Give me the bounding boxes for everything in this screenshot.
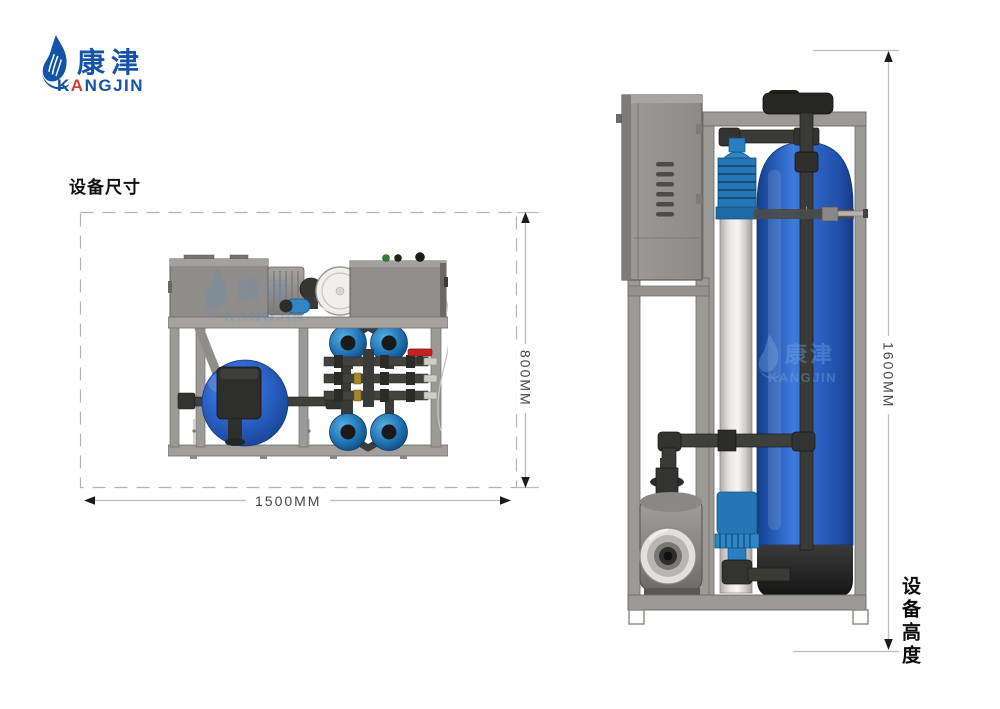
tank-control-valve <box>763 90 833 114</box>
red-valve-handle <box>408 349 432 356</box>
brand-en-accent: A <box>71 76 85 95</box>
base-frame <box>628 595 868 624</box>
equipment-side-view: 康津 KANGJIN <box>608 90 878 660</box>
manifold-ports <box>424 358 437 399</box>
filter-manifold <box>324 325 437 451</box>
page-canvas: 康津 KANGJIN 设备尺寸 <box>0 0 1000 709</box>
foot <box>629 610 644 624</box>
svg-text:康津: 康津 <box>785 342 835 367</box>
brass-fitting <box>354 373 361 384</box>
svg-text:KANGJIN: KANGJIN <box>224 308 306 325</box>
svg-text:康津: 康津 <box>236 276 294 305</box>
height-caption: 设备高度 <box>896 576 923 668</box>
right-electrical-box <box>350 261 446 319</box>
brand-en-rest: NGJIN <box>85 76 144 95</box>
brand-name-chinese: 康津 <box>77 49 145 77</box>
tank-strap <box>754 207 868 221</box>
dimension-width-label: 1500MM <box>246 493 330 510</box>
brand-name-english: KANGJIN <box>57 77 144 94</box>
watermark-side-view: 康津 KANGJIN <box>758 334 837 385</box>
svg-text:KANGJIN: KANGJIN <box>768 370 837 385</box>
membrane-top-fitting <box>716 138 758 219</box>
section-title: 设备尺寸 <box>69 173 141 198</box>
brand-logo: 康津 KANGJIN <box>30 28 210 123</box>
brass-fitting <box>354 390 361 401</box>
control-cabinet <box>616 95 702 280</box>
pump <box>640 458 702 596</box>
equipment-top-view: 康津 KANGJIN <box>168 251 448 461</box>
panel-buttons <box>383 253 425 262</box>
dimension-height-label: 1600MM <box>879 336 896 414</box>
foot <box>853 610 868 624</box>
dimension-depth-label: 800MM <box>516 344 533 413</box>
brand-en-k: K <box>57 76 71 95</box>
